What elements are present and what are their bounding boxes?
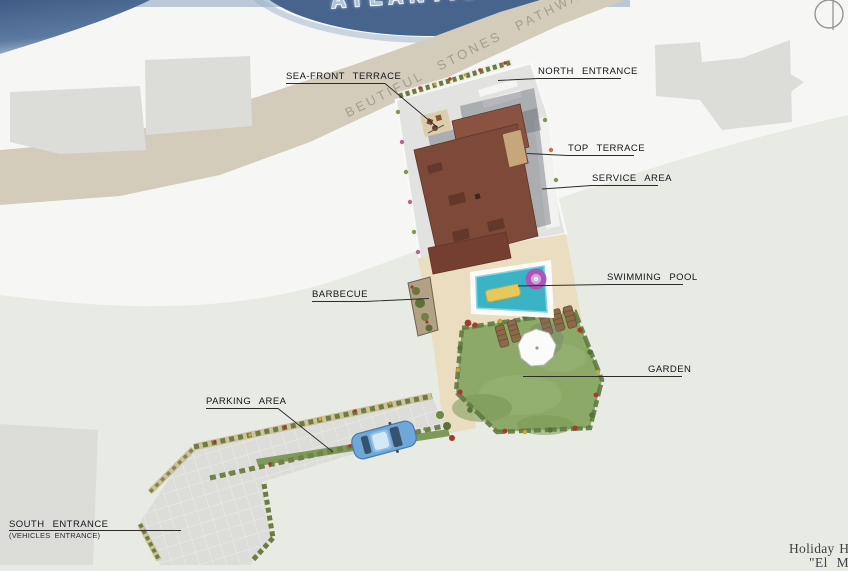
callout-south-entrance: SOUTH ENTRANCE [9,519,108,530]
neighbor-building [10,86,146,154]
callout-garden: GARDEN [648,364,691,375]
callout-north-entrance: NORTH ENTRANCE [538,66,638,77]
neighbor-building [145,56,252,135]
gazebo-center [535,346,538,349]
title-block-line2: "El M [809,555,848,571]
pool-float-ring [526,269,547,290]
site-plan-image: ATLANTIC OCEAN BEUTIFUL STONES PATHWAY S… [0,0,848,565]
callout-swimming-pool: SWIMMING POOL [607,272,698,283]
callout-top-terrace: TOP TERRACE [568,143,645,154]
callout-parking-area: PARKING AREA [206,396,286,407]
callout-barbecue: BARBECUE [312,289,368,300]
callout-south-entrance-sub: (VEHICLES ENTRANCE) [9,531,100,540]
callout-service-area: SERVICE AREA [592,173,672,184]
neighbor-building [0,424,98,565]
callout-sea-front-terrace: SEA-FRONT TERRACE [286,71,401,82]
plan-graphics [0,0,848,565]
